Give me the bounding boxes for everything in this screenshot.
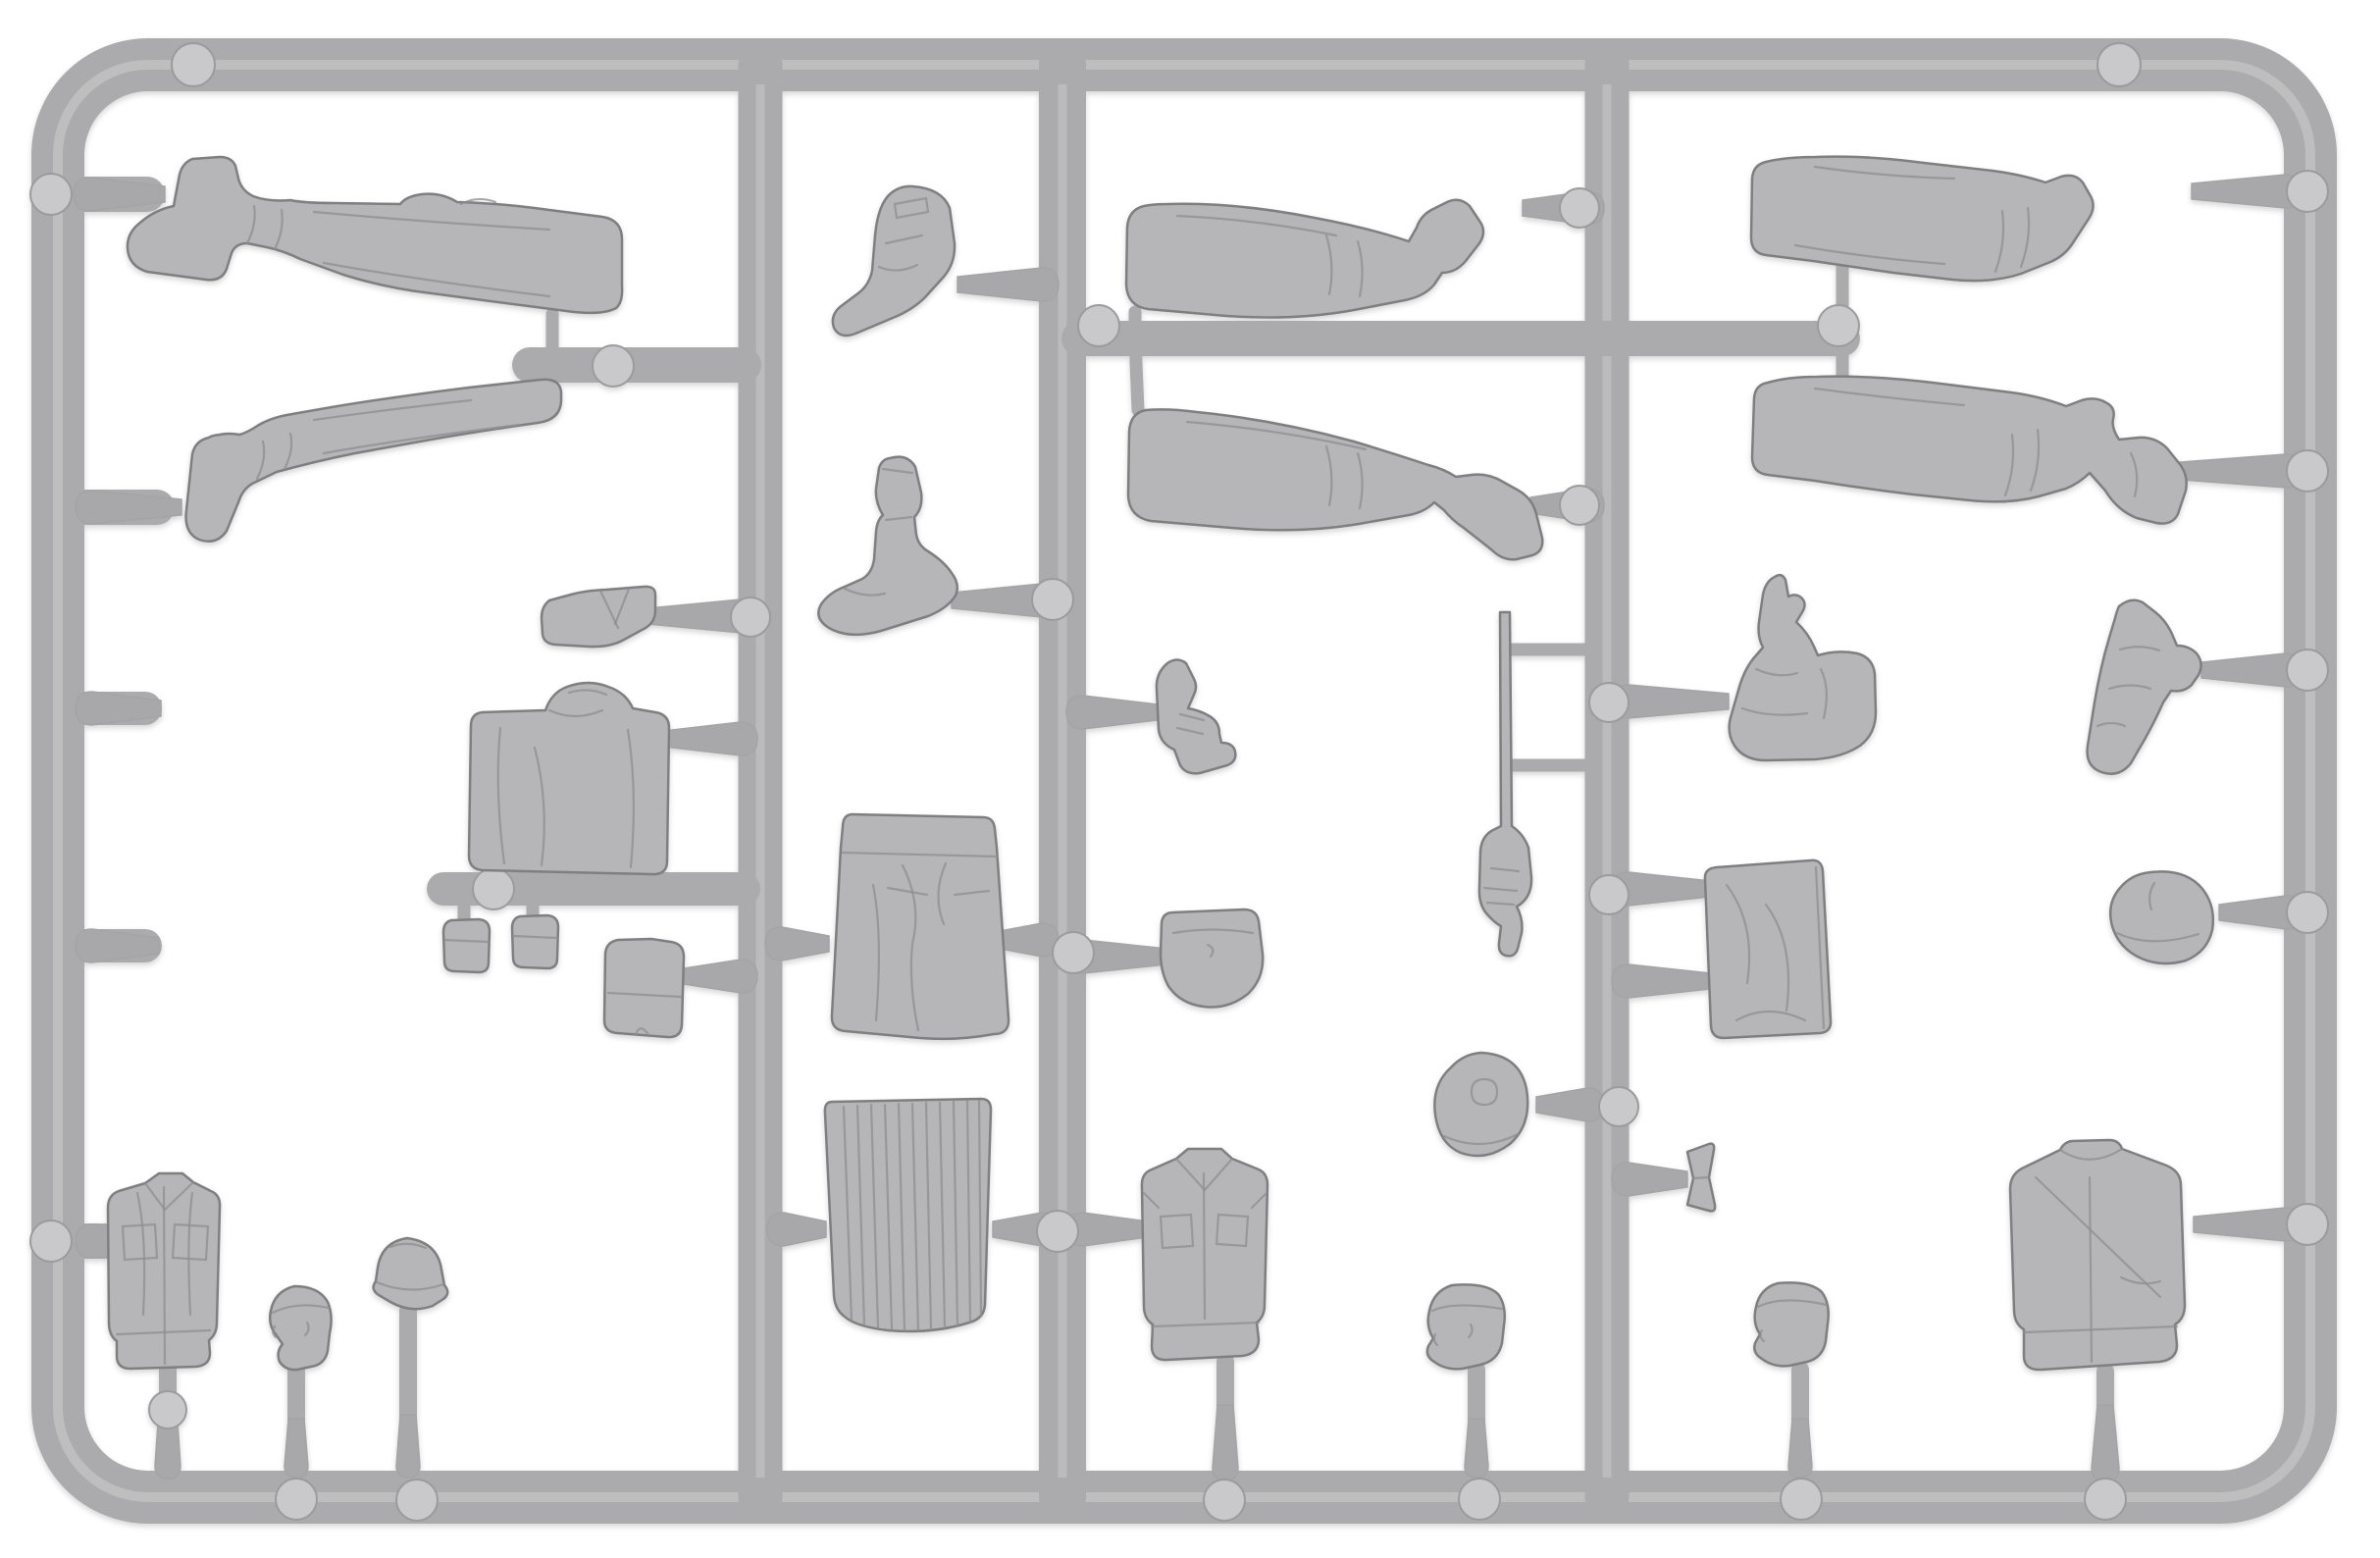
part-tarp-with-hand (469, 683, 669, 874)
ejector-pin-mark-12 (1589, 683, 1629, 722)
sprue-gate-35 (2092, 1405, 2119, 1481)
ejector-pin-mark-1 (2097, 43, 2141, 86)
ejector-pin-mark-10 (1053, 932, 1094, 973)
part-ammo-pouch-b-body (512, 915, 558, 968)
part-torso-battledress-left (108, 1173, 220, 1369)
part-haversack-body (604, 939, 684, 1037)
part-greatcoat-skirt-body (832, 814, 1009, 1039)
thin-sprue-5 (1135, 338, 1138, 410)
ejector-pin-mark-8 (473, 868, 514, 909)
part-torso-bandolier-body (2010, 1140, 2185, 1370)
ejector-pin-mark-6 (1818, 305, 1859, 346)
part-head-side-cap-body (270, 1286, 331, 1370)
ejector-pin-mark-26 (1781, 1479, 1822, 1520)
ejector-pin-mark-9 (1032, 579, 1073, 620)
part-torso-battledress-center (1142, 1149, 1268, 1360)
ejector-pin-mark-21 (2287, 1204, 2328, 1245)
ejector-pin-mark-27 (2085, 1479, 2126, 1520)
part-beret-cap (2110, 871, 2213, 963)
part-pleated-kilt (825, 1099, 991, 1331)
sprue-gate-31 (396, 1415, 420, 1478)
part-haversack (604, 939, 684, 1037)
ejector-pin-mark-19 (2287, 649, 2328, 691)
part-beret-cap-body (2110, 871, 2213, 963)
part-ammo-pouch-a (443, 919, 490, 972)
sprue-gate-30 (285, 1419, 308, 1478)
part-head-bare (1427, 1284, 1505, 1369)
ejector-pin-mark-28 (149, 1391, 186, 1428)
ejector-pin-mark-22 (276, 1479, 317, 1520)
part-small-buckle-detail-0 (1693, 1177, 1709, 1178)
part-torso-bandolier (2010, 1140, 2185, 1370)
part-entrenching-shovel (1161, 909, 1263, 1007)
sprue-photo (0, 0, 2380, 1558)
part-torso-battledress-left-detail-0 (164, 1187, 165, 1364)
ejector-pin-mark-18 (2287, 450, 2328, 492)
part-ammo-pouch-a-body (443, 919, 490, 972)
ejector-pin-mark-25 (1459, 1479, 1500, 1520)
ejector-pin-mark-24 (1204, 1480, 1245, 1521)
ejector-pin-mark-23 (396, 1480, 438, 1521)
part-head-side-cap (270, 1286, 331, 1370)
ejector-pin-mark-5 (1078, 305, 1119, 346)
part-torso-battledress-center-detail-0 (1204, 1173, 1205, 1319)
ejector-pin-mark-11 (1037, 1211, 1078, 1252)
ejector-pin-mark-4 (593, 345, 634, 387)
sprue-svg (0, 0, 2380, 1558)
ejector-pin-mark-7 (731, 597, 770, 637)
ejector-pin-mark-0 (172, 43, 215, 86)
ejector-pin-mark-15 (1560, 188, 1599, 228)
part-folded-tarpaulin (1705, 860, 1831, 1038)
part-head-bare-body (1427, 1284, 1505, 1369)
ejector-pin-mark-13 (1589, 875, 1629, 914)
ejector-pin-mark-17 (2287, 171, 2328, 212)
sprue-gate-32 (1213, 1405, 1238, 1480)
part-greatcoat-skirt (832, 814, 1009, 1039)
ejector-pin-mark-16 (1560, 486, 1599, 525)
ejector-pin-mark-2 (30, 174, 72, 215)
part-entrenching-shovel-body (1161, 909, 1263, 1007)
sprue-gate-33 (1465, 1419, 1488, 1478)
part-head-cap-body (1754, 1282, 1828, 1366)
sprue-gate-34 (1788, 1419, 1812, 1478)
ejector-pin-mark-3 (30, 1220, 72, 1262)
part-beret-tam (1434, 1053, 1527, 1156)
part-head-cap (1754, 1282, 1828, 1366)
ejector-pin-mark-20 (2287, 892, 2328, 933)
part-ammo-pouch-b (512, 915, 558, 968)
ejector-pin-mark-14 (1599, 1087, 1638, 1126)
